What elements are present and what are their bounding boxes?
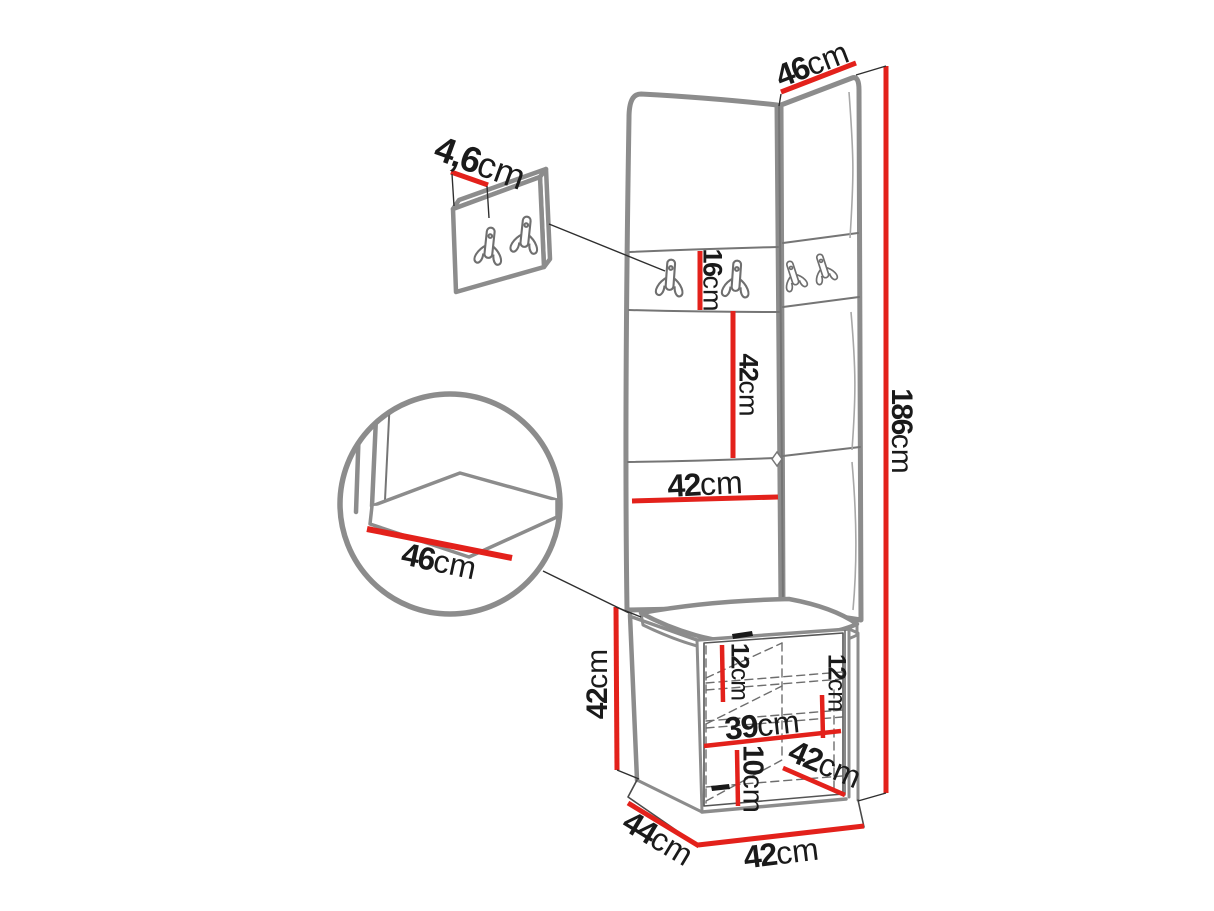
dimension-shelf-gap-right: 12cm xyxy=(824,654,849,712)
dimension-shelf-gap-left: 12cm xyxy=(727,643,752,701)
diagram-drawing xyxy=(0,0,1214,911)
callout-detail-circle xyxy=(543,571,629,613)
dimension-total-height: 186cm xyxy=(886,388,916,474)
dim-line-cabinet-height xyxy=(616,607,617,770)
tall-corner-panel xyxy=(626,78,861,620)
dimension-hook-strip-height: 16cm xyxy=(699,248,726,311)
dimension-panel-width: 42cm xyxy=(667,466,744,502)
dimension-cabinet-inner-width: 39cm xyxy=(723,705,801,745)
dimension-cabinet-height: 42cm xyxy=(583,649,613,719)
furniture-dimension-diagram: 46cm 4,6cm 16cm 42cm 42cm 46cm 186cm 42c… xyxy=(0,0,1214,911)
dimension-panel-section-height: 42cm xyxy=(735,353,762,416)
panel-left-face xyxy=(626,94,781,610)
panel-right-face xyxy=(781,78,861,620)
dim-line-shelf-gap-left xyxy=(722,645,723,702)
dimension-plinth-height: 10cm xyxy=(738,745,767,813)
dimension-cabinet-width: 42cm xyxy=(742,833,821,874)
